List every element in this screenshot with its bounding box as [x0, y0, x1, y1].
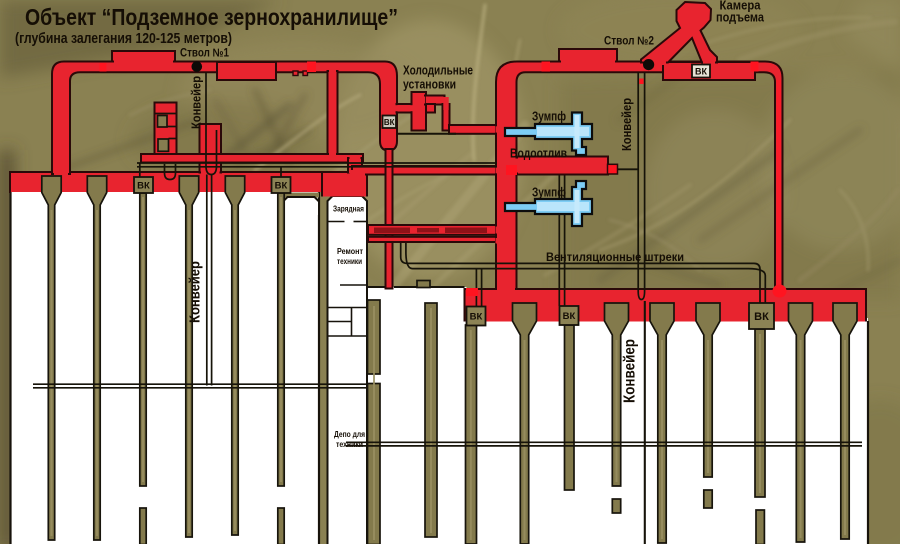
- svg-text:Депо для: Депо для: [334, 430, 365, 439]
- svg-text:Конвейер: Конвейер: [190, 76, 204, 129]
- svg-text:Зумпф: Зумпф: [532, 109, 566, 124]
- svg-text:подъема: подъема: [716, 11, 765, 25]
- svg-text:ВК: ВК: [695, 67, 707, 77]
- svg-text:техники: техники: [336, 440, 363, 449]
- svg-text:ВК: ВК: [137, 181, 150, 192]
- svg-text:техники: техники: [337, 257, 362, 266]
- svg-text:Ствол №2: Ствол №2: [604, 36, 654, 48]
- svg-text:Конвейер: Конвейер: [187, 261, 204, 323]
- svg-text:Вентиляционные штреки: Вентиляционные штреки: [546, 252, 684, 264]
- svg-text:Конвейер: Конвейер: [622, 339, 639, 403]
- svg-text:Холодильные: Холодильные: [403, 63, 473, 78]
- svg-text:Конвейер: Конвейер: [620, 98, 634, 151]
- svg-text:ВК: ВК: [470, 312, 483, 323]
- svg-text:Объект “Подземное зернохранили: Объект “Подземное зернохранилище”: [25, 4, 398, 30]
- svg-text:ВК: ВК: [275, 181, 288, 192]
- svg-text:Зумпф: Зумпф: [532, 185, 566, 200]
- svg-text:(глубина залегания 120-125 мет: (глубина залегания 120-125 метров): [15, 31, 232, 47]
- svg-text:Водоотлив: Водоотлив: [510, 147, 567, 161]
- svg-text:ВК: ВК: [384, 118, 395, 127]
- svg-text:ВК: ВК: [563, 311, 576, 322]
- svg-text:Зарядная: Зарядная: [333, 204, 364, 214]
- svg-text:Ремонт: Ремонт: [337, 247, 363, 256]
- svg-text:Ствол №1: Ствол №1: [180, 48, 230, 60]
- svg-text:установки: установки: [403, 77, 456, 92]
- svg-text:ВК: ВК: [754, 311, 769, 323]
